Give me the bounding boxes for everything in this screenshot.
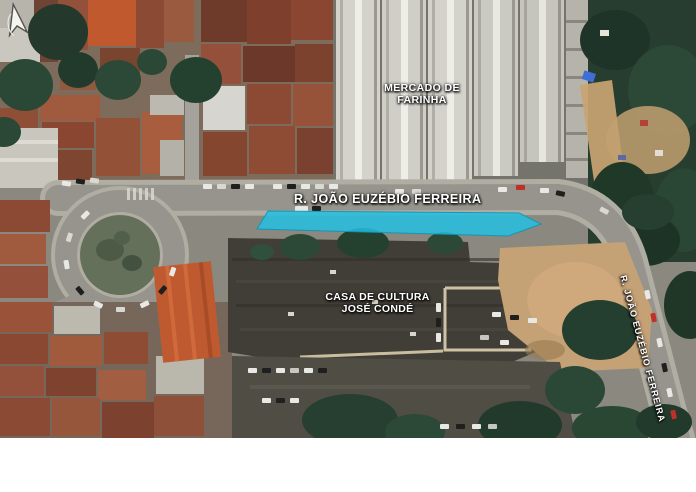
label-casa-de-cultura: CASA DE CULTURA JOSÉ CONDÉ (310, 292, 445, 315)
label-mercado-line2: FARINHA (362, 95, 482, 107)
label-street-main: R. JOÃO EUZÉBIO FERREIRA (294, 192, 554, 206)
label-casa-line1: CASA DE CULTURA (310, 292, 445, 304)
legend-bar: LEGENDA ÁREA DE ESTACIONAMENTO ROTATIVO … (0, 438, 696, 492)
label-mercado-line1: MERCADO DE (362, 83, 482, 95)
north-arrow-icon (0, 0, 32, 42)
label-casa-line2: JOSÉ CONDÉ (310, 304, 445, 316)
aerial-imagery (0, 0, 696, 438)
aerial-map: MERCADO DE FARINHA R. JOÃO EUZÉBIO FERRE… (0, 0, 696, 438)
map-figure: MERCADO DE FARINHA R. JOÃO EUZÉBIO FERRE… (0, 0, 696, 492)
label-mercado-de-farinha: MERCADO DE FARINHA (362, 83, 482, 106)
